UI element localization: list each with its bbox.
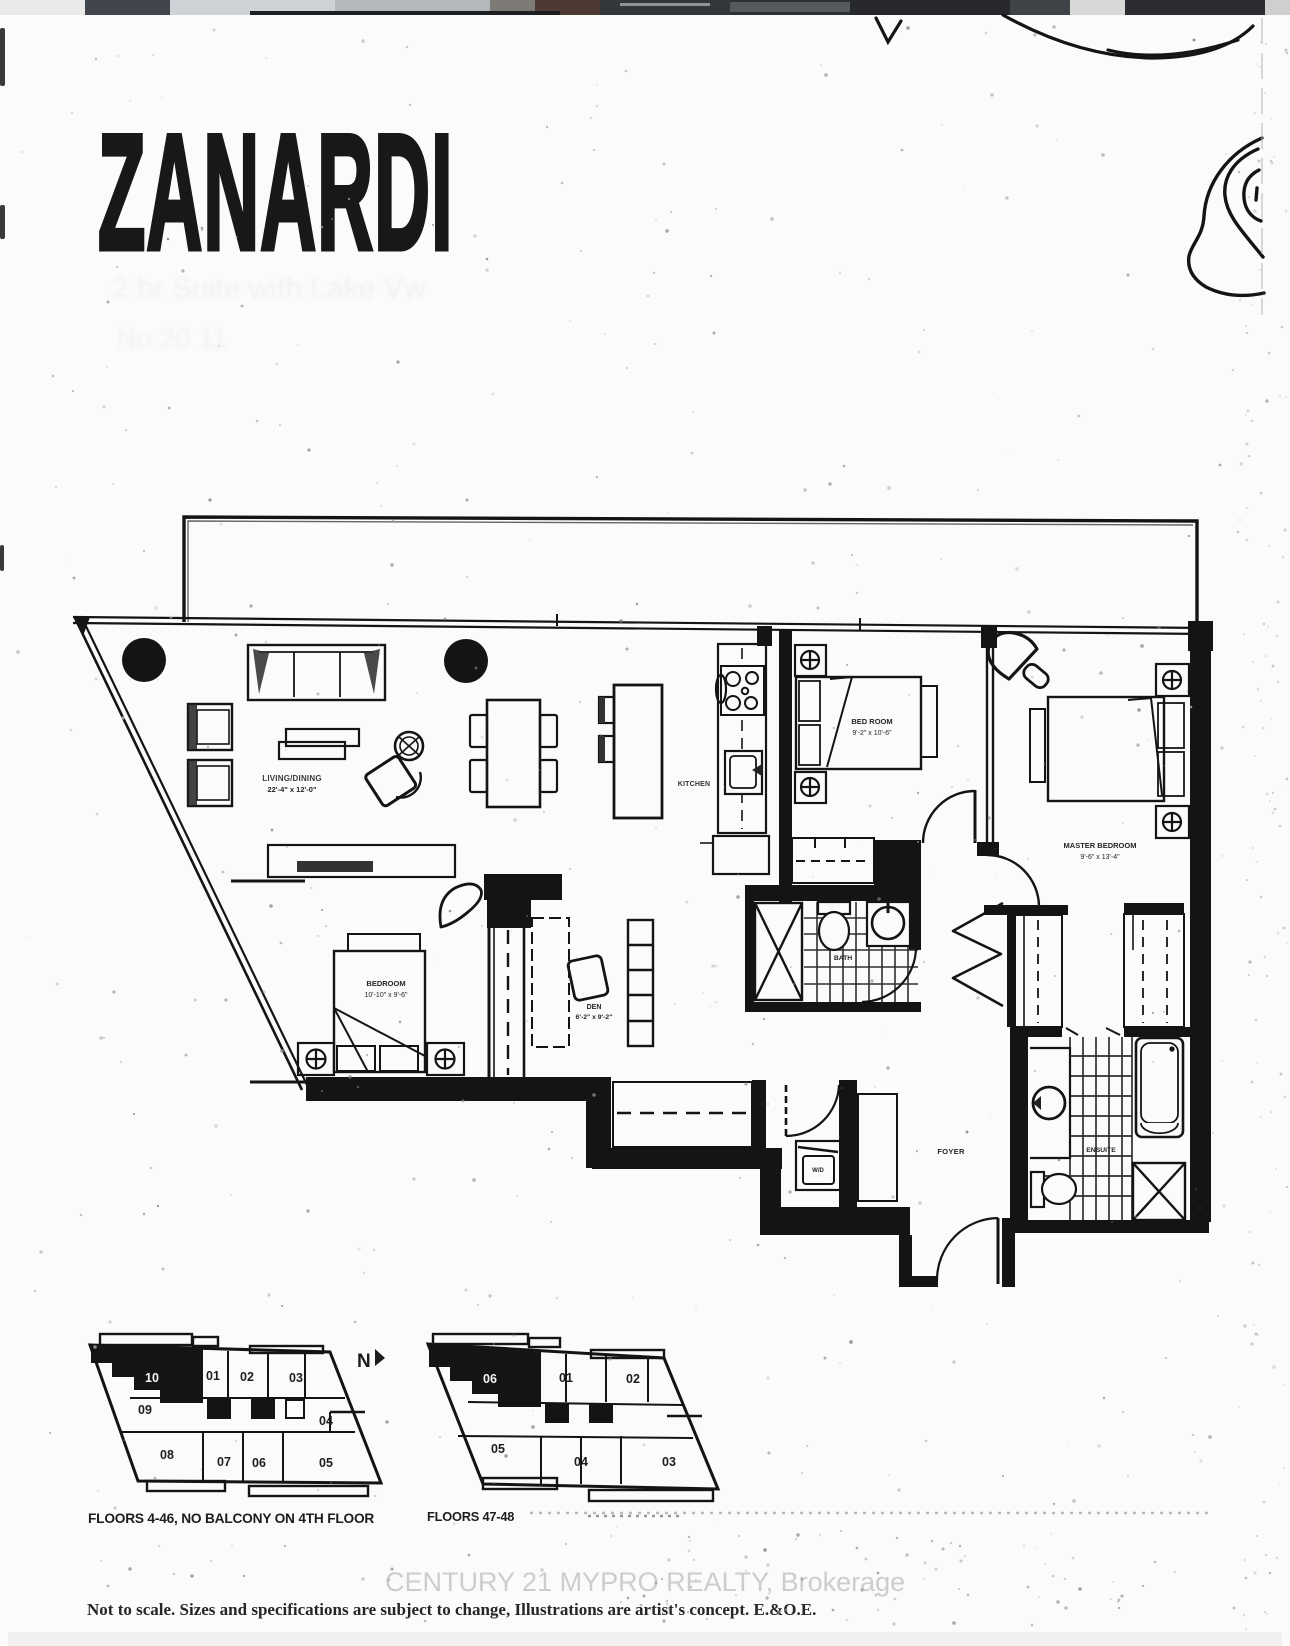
svg-text:9'-6" x 13'-4": 9'-6" x 13'-4" [1080, 854, 1120, 861]
svg-text:01: 01 [206, 1369, 220, 1383]
svg-text:05: 05 [319, 1456, 333, 1470]
svg-text:No 20 11: No 20 11 [116, 323, 228, 354]
svg-text:2 br Suite with Lake Vw: 2 br Suite with Lake Vw [112, 272, 426, 305]
svg-text:FLOORS 47-48: FLOORS 47-48 [427, 1509, 514, 1524]
svg-text:02: 02 [240, 1370, 254, 1384]
svg-text:04: 04 [319, 1414, 333, 1428]
svg-text:03: 03 [662, 1455, 676, 1469]
svg-text:6'-2" x 9'-2": 6'-2" x 9'-2" [576, 1014, 613, 1021]
svg-text:LIVING/DINING: LIVING/DINING [262, 774, 322, 783]
svg-text:N: N [357, 1351, 371, 1372]
svg-text:KITCHEN: KITCHEN [678, 781, 711, 788]
svg-text:DEN: DEN [587, 1004, 602, 1011]
svg-text:9'-2" x 10'-6": 9'-2" x 10'-6" [852, 730, 892, 737]
svg-text:W/D: W/D [812, 1168, 824, 1174]
svg-text:BATH: BATH [834, 955, 852, 962]
svg-text:07: 07 [217, 1455, 231, 1469]
svg-text:03: 03 [289, 1371, 303, 1385]
svg-text:04: 04 [574, 1455, 588, 1469]
svg-text:Not to scale. Sizes and specif: Not to scale. Sizes and specifications a… [87, 1600, 816, 1619]
svg-text:01: 01 [559, 1371, 573, 1385]
svg-text:22'-4" x 12'-0": 22'-4" x 12'-0" [267, 785, 316, 794]
svg-text:FLOORS 4-46, NO BALCONY ON 4TH: FLOORS 4-46, NO BALCONY ON 4TH FLOOR [88, 1511, 374, 1526]
svg-text:BED ROOM: BED ROOM [851, 717, 892, 726]
svg-text:BEDROOM: BEDROOM [366, 979, 405, 988]
svg-text:06: 06 [483, 1372, 497, 1386]
svg-text:FOYER: FOYER [937, 1147, 965, 1156]
svg-text:06: 06 [252, 1456, 266, 1470]
svg-text:MASTER BEDROOM: MASTER BEDROOM [1064, 841, 1137, 850]
svg-text:ENSUITE: ENSUITE [1086, 1147, 1116, 1154]
svg-text:10'-10" x 9'-6": 10'-10" x 9'-6" [364, 992, 408, 999]
svg-text:02: 02 [626, 1372, 640, 1386]
svg-text:CENTURY 21 MYPRO REALTY, Broke: CENTURY 21 MYPRO REALTY, Brokerage [385, 1567, 905, 1597]
svg-text:ZANARDI: ZANARDI [98, 101, 453, 285]
svg-text:10: 10 [145, 1371, 159, 1385]
svg-text:08: 08 [160, 1448, 174, 1462]
svg-text:05: 05 [491, 1442, 505, 1456]
svg-text:09: 09 [138, 1403, 152, 1417]
